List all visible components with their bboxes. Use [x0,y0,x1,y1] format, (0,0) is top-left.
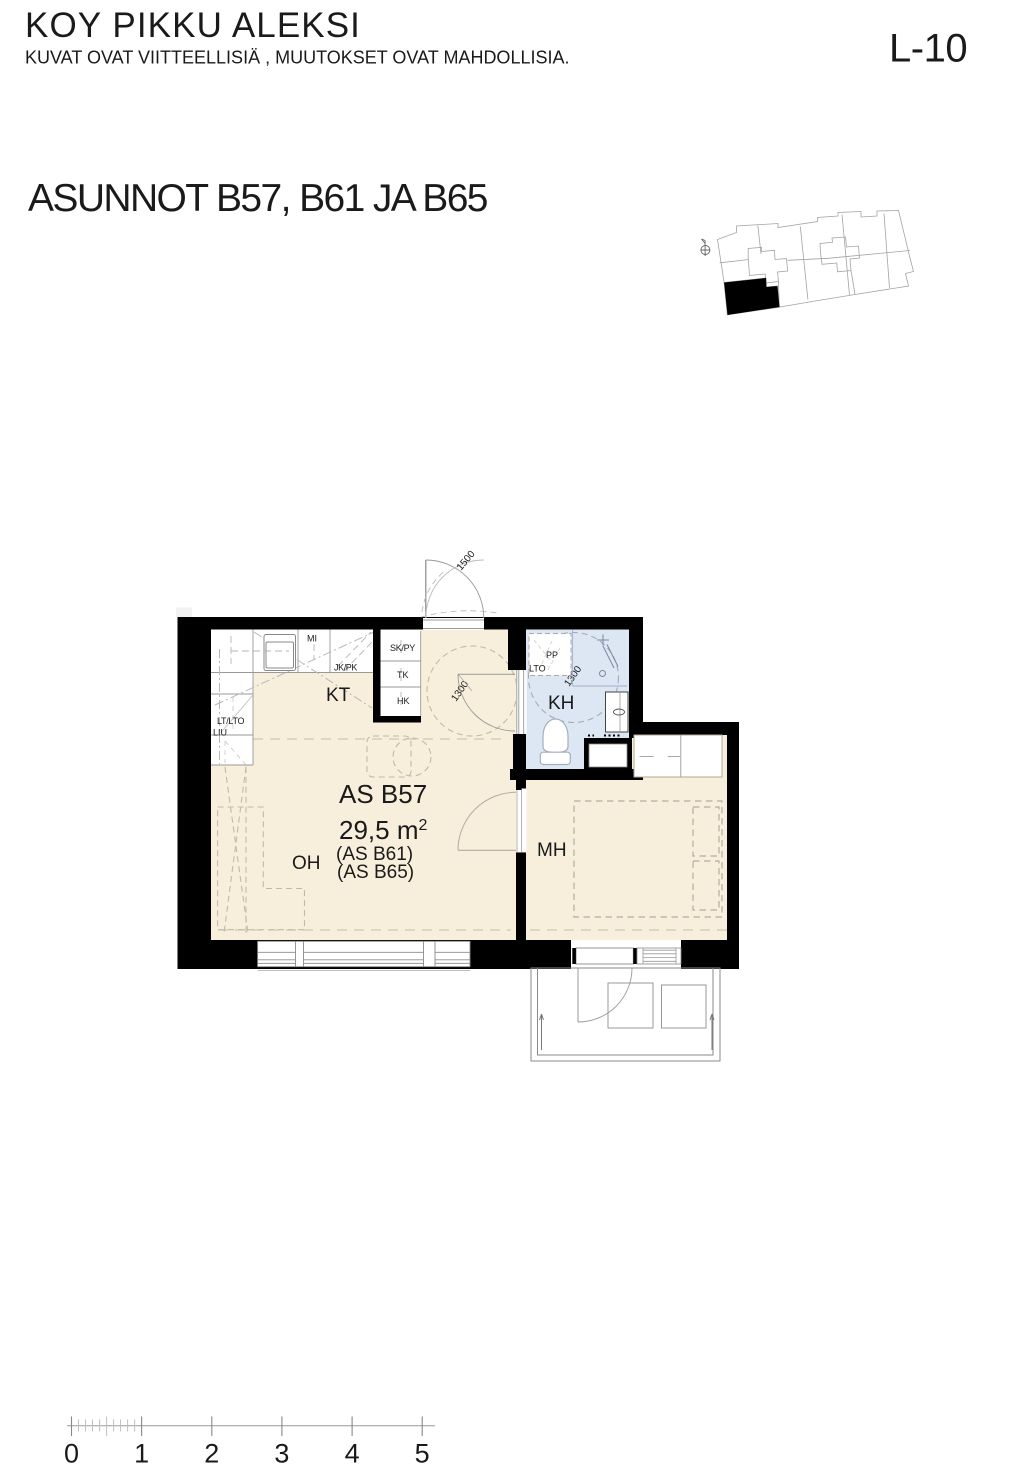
svg-text:KT: KT [326,685,351,706]
svg-text:OH: OH [292,853,321,874]
svg-text:MI: MI [307,634,317,644]
svg-text:2: 2 [204,1439,219,1469]
svg-text:SK/PY: SK/PY [390,643,415,653]
svg-text:KUVAT OVAT VIITTEELLISIÄ , MUU: KUVAT OVAT VIITTEELLISIÄ , MUUTOKSET OVA… [25,48,569,68]
svg-text:LT/LTO: LT/LTO [217,716,245,726]
svg-text:29,5 m2: 29,5 m2 [339,815,428,845]
svg-text:5: 5 [415,1439,430,1469]
svg-text:JK/PK: JK/PK [334,663,357,673]
svg-text:4: 4 [345,1439,360,1469]
svg-text:MH: MH [537,840,567,861]
svg-text:PP: PP [546,650,558,660]
svg-text:3: 3 [274,1439,289,1469]
svg-text:KH: KH [548,693,574,714]
svg-text:ASUNNOT B57, B61 JA B65: ASUNNOT B57, B61 JA B65 [28,177,488,220]
svg-text:0: 0 [64,1439,79,1469]
svg-text:1: 1 [134,1439,149,1469]
svg-text:HK: HK [397,696,410,706]
svg-text:L-10: L-10 [889,27,967,71]
svg-text:AS B57: AS B57 [339,779,427,809]
svg-text:LIU: LIU [213,728,227,738]
svg-text:KOY PIKKU ALEKSI: KOY PIKKU ALEKSI [25,6,361,45]
svg-text:(AS B65): (AS B65) [337,862,414,883]
svg-text:LTO: LTO [529,664,546,674]
svg-text:TK: TK [397,670,409,680]
